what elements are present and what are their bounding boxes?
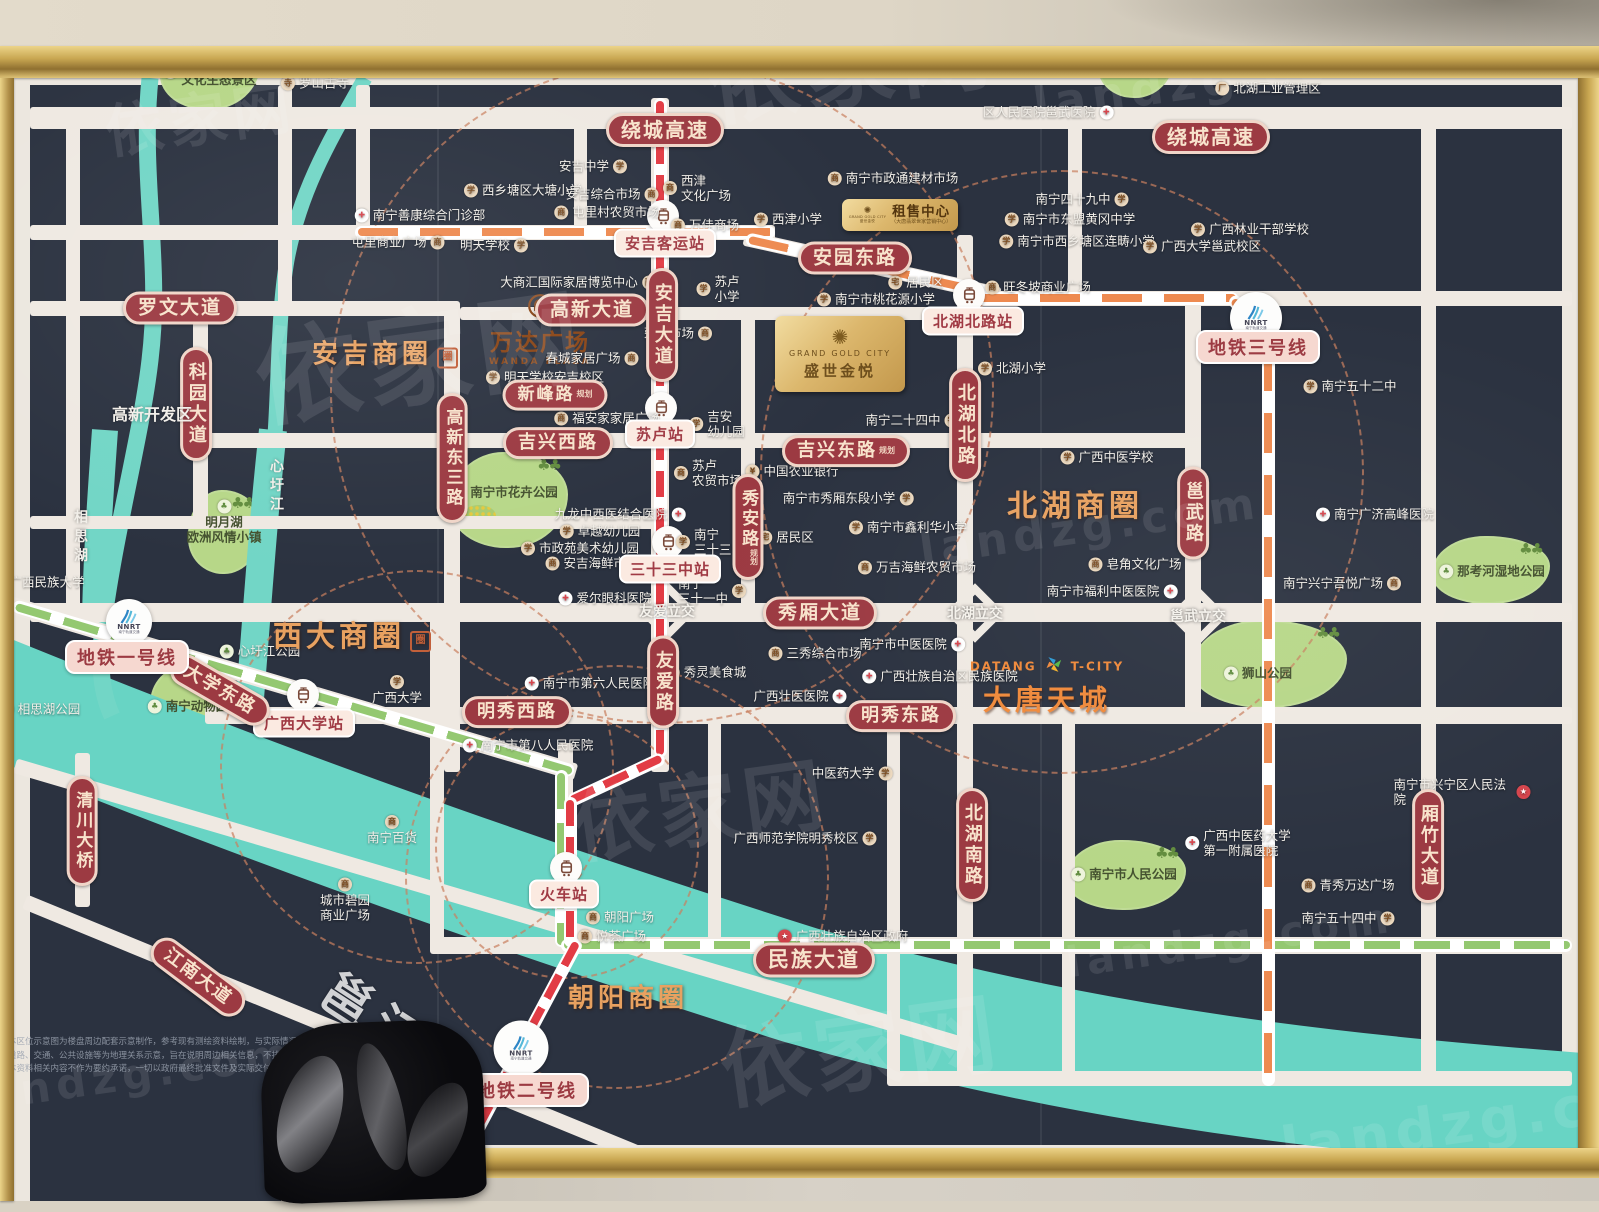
road-name: 厢竹大道 xyxy=(1418,804,1439,888)
road-name: 绕城高速 xyxy=(1167,125,1255,149)
sunburst-icon: ✺ xyxy=(832,327,849,347)
school-icon: 学 xyxy=(978,361,992,375)
poi-label: ✚南宁广济高峰医院 xyxy=(1316,507,1434,522)
road-name: 安吉大道 xyxy=(652,283,673,367)
map-dark-background-ext xyxy=(30,1140,281,1201)
poi-text: 屯里商业广场 xyxy=(351,235,426,250)
school-icon: 学 xyxy=(514,238,528,252)
poi-text: 明天学校 xyxy=(460,238,510,253)
school-icon: 学 xyxy=(878,766,892,780)
poi-text: 明月湖 欧洲风情小镇 xyxy=(186,515,261,545)
poi-text: 南宁市政通建材市场 xyxy=(846,171,959,186)
road-name-pill: 北湖南路 xyxy=(956,788,988,902)
road-name: 明秀西路 xyxy=(477,701,557,722)
planned-tag: 规划 xyxy=(750,549,759,565)
school-icon: 学 xyxy=(732,584,746,598)
school-icon: 学 xyxy=(1060,450,1074,464)
poi-label: 商南宁市政通建材市场 xyxy=(828,171,959,186)
poi-text: 皂角文化广场 xyxy=(1106,557,1181,572)
poi-text: 北湖小学 xyxy=(996,361,1046,376)
poi-label: ✚南宁市第六人民医院 xyxy=(525,676,656,691)
wall-top xyxy=(0,0,1599,46)
poi-text: 广西中医学校 xyxy=(1078,450,1153,465)
hospital-icon: ✚ xyxy=(671,507,685,521)
poi-label: 学苏卢 小学 xyxy=(696,274,739,304)
metro-station-icon xyxy=(287,679,319,711)
poi-text: 广西民族大学 xyxy=(9,575,84,590)
road-name-pill: 吉兴东路规划 xyxy=(782,435,910,467)
metro-line-label: 地铁三号线 xyxy=(1196,330,1320,364)
nnrt-subtext: 南宁轨道交通 xyxy=(119,631,140,635)
hospital-icon: ✚ xyxy=(862,669,876,683)
school-icon: 学 xyxy=(1115,192,1129,206)
nnrt-logo: NNRT南宁轨道交通 xyxy=(106,599,152,645)
poi-text: 南宁善康综合门诊部 xyxy=(373,208,486,223)
market-icon: 商 xyxy=(625,351,639,365)
poi-text: 广西中医药大学 第一附属医院 xyxy=(1203,828,1291,858)
road-name-pill: 绕城高速 xyxy=(1152,120,1270,154)
market-icon: 商 xyxy=(663,181,677,195)
hospital-icon: ✚ xyxy=(558,591,572,605)
poi-label: 商苏卢 农贸市场 xyxy=(674,458,742,488)
poi-text: 市政苑美术幼儿园 xyxy=(539,541,639,556)
grand-gold-city-plate: ✺ GRAND GOLD CITY 盛世金悦 xyxy=(775,316,905,392)
interchange-label: 友爱立交 xyxy=(639,601,695,621)
market-icon: 商 xyxy=(338,878,352,892)
metro-station-label: 北湖北路站 xyxy=(922,307,1024,336)
poi-label: 南宁二十四中学 xyxy=(865,413,958,428)
poi-text: 南宁市秀厢东段小学 xyxy=(783,491,896,506)
datang-name-cn: 大唐天城 xyxy=(970,679,1124,719)
poi-text: 旺冬坡商业广场 xyxy=(1003,280,1091,295)
poi-text: 南宁四十九中 xyxy=(1035,192,1110,207)
hospital-icon: ✚ xyxy=(525,676,539,690)
poi-text: 青秀万达广场 xyxy=(1319,878,1394,893)
poi-label: 南宁市秀厢东段小学学 xyxy=(783,491,914,506)
road-name: 罗文大道 xyxy=(138,297,222,319)
frame-top xyxy=(0,46,1599,78)
poi-label: ♣明月湖 欧洲风情小镇 xyxy=(186,500,261,545)
poi-text: 南宁兴宁吾悦广场 xyxy=(1283,576,1383,591)
poi-text: 居民区 xyxy=(776,530,814,545)
datang-pinwheel-icon xyxy=(1043,654,1065,679)
datang-tcity-logo: DATANG T-CITY 大唐天城 xyxy=(970,654,1124,719)
poi-label: 商南宁百货 xyxy=(367,815,417,845)
market-icon: 商 xyxy=(768,646,782,660)
market-icon: 商 xyxy=(858,560,872,574)
poi-label: 学南宁市东盟黄冈中学 xyxy=(1005,212,1136,227)
market-icon: 商 xyxy=(1301,878,1315,892)
poi-text: 卓越幼儿园 xyxy=(578,524,641,539)
market-icon: 商 xyxy=(1088,557,1102,571)
gov-icon: ★ xyxy=(778,929,792,943)
market-icon: 商 xyxy=(554,411,568,425)
poi-text: 秀灵美食城 xyxy=(684,665,747,680)
road-name-pill: 罗文大道 xyxy=(123,292,237,325)
road-name-pill: 明秀东路 xyxy=(846,700,956,732)
poi-label: 商朝阳广场 xyxy=(586,910,654,925)
road-name-pill: 友爱路 xyxy=(647,636,679,729)
poi-text: 悦荟广场 xyxy=(596,929,646,944)
gov-icon: ★ xyxy=(1517,785,1531,799)
road-name-pill: 厢竹大道 xyxy=(1412,789,1444,903)
school-icon: 学 xyxy=(899,491,913,505)
poi-text: 南宁市福利中医医院 xyxy=(1047,584,1160,599)
poi-text: 相思湖公园 xyxy=(18,702,81,717)
rental-center-title: 租售中心 xyxy=(891,205,951,220)
planned-tag: 规划 xyxy=(879,446,895,455)
road-name: 绕城高速 xyxy=(621,118,709,142)
park-icon: ♣ xyxy=(1071,867,1085,881)
road-name-pill: 民族大道 xyxy=(753,942,875,977)
business-circle-name: 朝阳商圈 xyxy=(568,984,688,1014)
poi-label: 学广西中医学校 xyxy=(1060,450,1153,465)
market-icon: 商 xyxy=(385,815,399,829)
school-icon: 学 xyxy=(1143,239,1157,253)
school-icon: 学 xyxy=(1005,212,1019,226)
poi-text: 广西壮族自治区政府 xyxy=(796,929,909,944)
poi-text: 南宁百货 xyxy=(367,830,417,845)
residence-icon: 宅 xyxy=(888,275,902,289)
rental-plate-logo: ✺ GRAND GOLD CITY 盛世金悦 xyxy=(849,207,886,223)
poi-label: ✚南宁市第八人民医院 xyxy=(463,738,594,753)
area-label: 心圩江 xyxy=(266,459,286,516)
metro-line-o xyxy=(1262,348,1275,1086)
hospital-icon: ✚ xyxy=(951,637,965,651)
road-name-pill: 秀安路规划 xyxy=(732,474,763,580)
school-icon: 学 xyxy=(754,212,768,226)
hospital-icon: ✚ xyxy=(1163,584,1177,598)
hospital-icon: ✚ xyxy=(833,689,847,703)
poi-text: 西津小学 xyxy=(772,212,822,227)
park-icon: ♣ xyxy=(1224,666,1238,680)
market-icon: 商 xyxy=(578,929,592,943)
poi-text: 西津 文化广场 xyxy=(681,173,731,203)
market-icon: 商 xyxy=(431,235,445,249)
area-label: 相思湖 xyxy=(70,510,90,567)
road-name: 民族大道 xyxy=(768,947,860,971)
poi-label: 学广西大学邕武校区 xyxy=(1143,239,1261,254)
black-bag-object xyxy=(259,1018,487,1205)
interchange-label: 北湖立交 xyxy=(947,603,1003,623)
project-name-en: GRAND GOLD CITY xyxy=(789,349,891,358)
road-name: 北湖北路 xyxy=(955,383,976,467)
school-icon: 学 xyxy=(521,541,535,555)
poi-label: ✚广西壮族自治区民族医院 xyxy=(862,669,1018,684)
road-name: 清川大桥 xyxy=(72,791,92,871)
market-icon: 商 xyxy=(985,280,999,294)
road-name-pill: 北湖北路 xyxy=(949,368,981,482)
market-icon: 商 xyxy=(674,466,688,480)
poi-text: 朝阳广场 xyxy=(604,910,654,925)
school-icon: 学 xyxy=(817,292,831,306)
poi-label: 商旺冬坡商业广场 xyxy=(985,280,1091,295)
poi-label: 广西壮医医院✚ xyxy=(753,689,846,704)
school-icon: 学 xyxy=(560,524,574,538)
frame-left xyxy=(0,78,14,1201)
park-icon: ♣ xyxy=(217,500,231,514)
park-icon: ♣ xyxy=(148,699,162,713)
metro-dashes xyxy=(1264,351,1272,1084)
hospital-icon: ✚ xyxy=(1185,836,1199,850)
road-name: 吉兴东路 xyxy=(797,440,877,461)
poi-text: 南宁市花卉公园 xyxy=(470,485,558,500)
rental-center-subtitle: （大唐翡翠世家营销中心） xyxy=(891,220,951,226)
school-icon: 学 xyxy=(863,831,877,845)
market-icon: 商 xyxy=(586,910,600,924)
road-name: 安园东路 xyxy=(813,247,897,269)
school-icon: 学 xyxy=(464,183,478,197)
poi-text: 广西壮族自治区民族医院 xyxy=(880,669,1018,684)
park-icon: ♣ xyxy=(220,644,234,658)
business-circle-label: 朝阳商圈 xyxy=(568,978,688,1015)
road-name: 友爱路 xyxy=(653,651,674,714)
poi-label: 商悦荟广场 xyxy=(578,929,646,944)
school-icon: 学 xyxy=(676,535,690,549)
poi-text: 居民区 xyxy=(906,275,944,290)
business-circle-name: 西大商圈 xyxy=(273,619,405,653)
road-name: 北湖南路 xyxy=(962,803,983,887)
poi-label: ✚广西中医药大学 第一附属医院 xyxy=(1185,828,1291,858)
poi-text: 苏卢 小学 xyxy=(714,274,739,304)
school-icon: 学 xyxy=(1303,379,1317,393)
poi-label: ★广西壮族自治区政府 xyxy=(778,929,909,944)
poi-label: 屯里商业广场商 xyxy=(351,235,444,250)
poi-label: ♣那考河湿地公园 xyxy=(1439,564,1545,579)
poi-text: 南宁市第六人民医院 xyxy=(543,676,656,691)
poi-label: 学北湖小学 xyxy=(978,361,1046,376)
road-name: 秀厢大道 xyxy=(778,602,862,624)
poi-label: 学南宁五十二中 xyxy=(1303,379,1396,394)
market-icon: 商 xyxy=(554,205,568,219)
market-icon: 商 xyxy=(545,556,559,570)
seal-icon: 圈 xyxy=(410,631,431,652)
poi-label: 商屯里村农贸市场 xyxy=(554,205,660,220)
tree-icon: ♣♣ xyxy=(1519,540,1542,558)
poi-label: 南宁市中医医院✚ xyxy=(859,637,965,652)
metro-line-label: 地铁一号线 xyxy=(65,640,189,674)
metro-station-label: 安吉客运站 xyxy=(614,229,716,258)
road-name-pill: 秀厢大道 xyxy=(763,597,877,630)
poi-label: 学广西林业干部学校 xyxy=(1191,222,1309,237)
poi-text: 南宁二十四中 xyxy=(865,413,940,428)
poi-label: 商三秀综合市场 xyxy=(768,646,861,661)
school-icon: 学 xyxy=(613,159,627,173)
school-icon: 学 xyxy=(999,234,1013,248)
poi-text: 九龙中西医结合医院 xyxy=(555,507,668,522)
market-icon: 商 xyxy=(645,187,659,201)
poi-text: 南宁广济高峰医院 xyxy=(1334,507,1434,522)
tcity-text: T-CITY xyxy=(1071,659,1125,673)
poi-label: 学西乡塘区大塘小学 xyxy=(464,183,582,198)
school-icon: 学 xyxy=(1191,222,1205,236)
poi-label: 商皂角文化广场 xyxy=(1088,557,1181,572)
poi-text: 南宁市人民公园 xyxy=(1089,867,1177,882)
poi-label: 学南宁市西乡塘区连畴小学 xyxy=(999,234,1155,249)
poi-text: 南宁市西乡塘区连畴小学 xyxy=(1017,234,1155,249)
metro-station-label: 三十三中站 xyxy=(619,555,721,584)
poi-text: 广西林业干部学校 xyxy=(1209,222,1309,237)
poi-label: ♣南宁市花卉公园 xyxy=(452,485,558,500)
poi-label: 南宁四十九中学 xyxy=(1035,192,1128,207)
frame-right xyxy=(1578,78,1599,1178)
poi-label: 学西津小学 xyxy=(754,212,822,227)
poi-text: 南宁市桃花源小学 xyxy=(835,292,935,307)
metro-station-label: 火车站 xyxy=(529,880,599,909)
poi-label: 商青秀万达广场 xyxy=(1301,878,1394,893)
school-icon: 学 xyxy=(696,282,710,296)
road-name-pill: 清川大桥 xyxy=(67,776,98,886)
poi-label: 商西津 文化广场 xyxy=(663,173,731,203)
hospital-icon: ✚ xyxy=(463,738,477,752)
poi-text: 南宁市第八人民医院 xyxy=(481,738,594,753)
hospital-icon: ✚ xyxy=(1316,507,1330,521)
park-icon: ♣ xyxy=(1439,564,1453,578)
road-name: 吉兴西路 xyxy=(518,432,598,453)
school-icon: 学 xyxy=(849,520,863,534)
poi-text: 吉安 幼儿园 xyxy=(707,409,745,439)
project-name-cn: 盛世金悦 xyxy=(804,360,876,381)
poi-text: 广西大学邕武校区 xyxy=(1161,239,1261,254)
market-icon: 商 xyxy=(698,326,712,340)
market-icon: 商 xyxy=(1387,576,1401,590)
poi-label: 南宁兴宁吾悦广场商 xyxy=(1283,576,1401,591)
metro-station-label: 苏卢站 xyxy=(625,420,695,449)
poi-text: 狮山公园 xyxy=(1242,666,1292,681)
poi-label: ✚爱尔眼科医院 xyxy=(558,591,651,606)
poi-label: 宅居民区 xyxy=(888,275,944,290)
poi-text: 广西壮医医院 xyxy=(753,689,828,704)
poi-label: ♣狮山公园 xyxy=(1224,666,1292,681)
hospital-icon: ✚ xyxy=(355,208,369,222)
road-name-pill: 明秀西路 xyxy=(462,696,572,728)
poi-text: 那考河湿地公园 xyxy=(1457,564,1545,579)
poi-text: 南宁五十二中 xyxy=(1321,379,1396,394)
map-board: ♣♣♣♣♣♣♣♣♣♣♣♣♣♣♣♣ NNRT南宁轨道交通NNRT南宁轨道交通NNR… xyxy=(0,0,1599,1201)
poi-label: 学卓越幼儿园 xyxy=(560,524,641,539)
wall-bottom xyxy=(295,1178,1599,1201)
poi-label: 学广西大学 xyxy=(372,675,422,705)
interchange-label: 邕武立交 xyxy=(1170,606,1226,626)
road-name-pill: 吉兴西路 xyxy=(503,427,613,459)
business-circle-label: 西大商圈圈 xyxy=(273,613,431,655)
market-icon: 商 xyxy=(828,171,842,185)
rental-center-plate: ✺ GRAND GOLD CITY 盛世金悦 租售中心 （大唐翡翠世家营销中心） xyxy=(842,199,958,231)
poi-label: 学南宁市桃花源小学 xyxy=(817,292,935,307)
poi-label: ✚南宁善康综合门诊部 xyxy=(355,208,486,223)
poi-label: 九龙中西医结合医院✚ xyxy=(555,507,686,522)
poi-text: 南宁市东盟黄冈中学 xyxy=(1023,212,1136,227)
road-name: 秀安路 xyxy=(738,489,758,549)
poi-text: 城市碧园 商业广场 xyxy=(320,893,370,923)
road-name-pill: 安园东路 xyxy=(798,242,912,275)
poi-text: 屯里村农贸市场 xyxy=(572,205,660,220)
area-label: 高新开发区 xyxy=(112,401,192,425)
road-name: 明秀东路 xyxy=(861,705,941,726)
poi-label: 南宁市福利中医医院✚ xyxy=(1047,584,1178,599)
poi-label: 安吉中学学 xyxy=(559,159,627,174)
poi-label: ♣南宁市人民公园 xyxy=(1071,867,1177,882)
poi-text: 南宁市中医医院 xyxy=(859,637,947,652)
poi-label: 宅居民区 xyxy=(758,530,814,545)
tree-icon: ♣♣ xyxy=(1155,844,1178,862)
poi-label: 学市政苑美术幼儿园 xyxy=(521,541,639,556)
framed-map-photo: ♣♣♣♣♣♣♣♣♣♣♣♣♣♣♣♣ NNRT南宁轨道交通NNRT南宁轨道交通NNR… xyxy=(0,0,1599,1201)
rental-logo-cn: 盛世金悦 xyxy=(860,220,875,224)
poi-text: 安吉综合市场 xyxy=(565,187,640,202)
metro-dashes xyxy=(978,294,1236,302)
poi-text: 安吉中学 xyxy=(559,159,609,174)
frame-bottom xyxy=(295,1148,1599,1178)
poi-label: 学吉安 幼儿园 xyxy=(689,409,745,439)
school-icon: 学 xyxy=(390,675,404,689)
poi-label: 明天学校学 xyxy=(460,238,528,253)
poi-text: 三秀综合市场 xyxy=(786,646,861,661)
poi-text: 广西大学 xyxy=(372,690,422,705)
poi-label: 安吉综合市场商 xyxy=(565,187,658,202)
road-name-pill: 绕城高速 xyxy=(606,113,724,147)
road-name-pill: 安吉大道 xyxy=(646,268,678,382)
poi-label: 商城市碧园 商业广场 xyxy=(320,878,370,923)
